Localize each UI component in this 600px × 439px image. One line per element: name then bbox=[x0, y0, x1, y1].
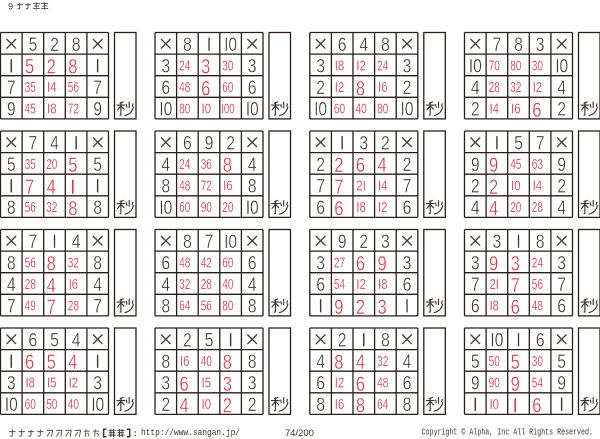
svg-text:8: 8 bbox=[536, 232, 545, 253]
svg-text:I4: I4 bbox=[489, 102, 499, 118]
svg-text:4: 4 bbox=[93, 275, 102, 296]
svg-text:8: 8 bbox=[68, 197, 77, 220]
svg-text:8: 8 bbox=[356, 77, 365, 100]
svg-text:48: 48 bbox=[377, 376, 388, 392]
svg-text:54: 54 bbox=[334, 277, 345, 293]
svg-text:4: 4 bbox=[161, 155, 170, 176]
svg-text:8: 8 bbox=[381, 330, 390, 351]
svg-text:3: 3 bbox=[223, 373, 232, 396]
svg-text:9: 9 bbox=[8, 1, 13, 11]
svg-text:90: 90 bbox=[489, 376, 500, 392]
svg-text:8: 8 bbox=[161, 177, 170, 198]
svg-text:2: 2 bbox=[334, 154, 343, 177]
svg-text:I: I bbox=[473, 395, 478, 416]
svg-text:32: 32 bbox=[68, 256, 79, 272]
svg-text:72: 72 bbox=[201, 179, 212, 195]
svg-text:I0: I0 bbox=[224, 232, 237, 253]
svg-text:48: 48 bbox=[179, 256, 190, 272]
svg-text:I: I bbox=[318, 297, 323, 318]
svg-text:I4: I4 bbox=[47, 80, 57, 96]
svg-text:7: 7 bbox=[47, 296, 56, 319]
svg-text:2: 2 bbox=[403, 78, 412, 99]
svg-text:50: 50 bbox=[489, 354, 500, 370]
svg-text:56: 56 bbox=[25, 256, 36, 272]
svg-text:I6: I6 bbox=[378, 80, 388, 96]
svg-text:9: 9 bbox=[334, 296, 343, 319]
svg-text:9: 9 bbox=[378, 253, 387, 276]
svg-text:60: 60 bbox=[222, 256, 233, 272]
svg-text:8: 8 bbox=[93, 198, 102, 219]
svg-text:2: 2 bbox=[557, 177, 566, 198]
svg-text:6: 6 bbox=[356, 373, 365, 396]
svg-text:28: 28 bbox=[532, 200, 543, 216]
svg-text:5: 5 bbox=[514, 133, 523, 154]
svg-text:32: 32 bbox=[46, 200, 57, 216]
svg-text:I0: I0 bbox=[401, 100, 414, 121]
svg-text:35: 35 bbox=[25, 157, 36, 173]
svg-text:7: 7 bbox=[403, 177, 412, 198]
svg-text:4: 4 bbox=[557, 198, 566, 219]
svg-text:3: 3 bbox=[161, 374, 170, 395]
svg-text:70: 70 bbox=[489, 59, 500, 75]
svg-text:80: 80 bbox=[179, 102, 190, 118]
svg-text:2: 2 bbox=[248, 395, 257, 416]
svg-text:3: 3 bbox=[378, 296, 387, 319]
svg-text:4: 4 bbox=[72, 330, 81, 351]
svg-text:42: 42 bbox=[201, 256, 212, 272]
svg-text:I0: I0 bbox=[202, 102, 212, 118]
svg-text:I8: I8 bbox=[489, 299, 499, 315]
svg-text:4: 4 bbox=[72, 232, 81, 253]
svg-text:3: 3 bbox=[161, 56, 170, 77]
svg-text:5: 5 bbox=[205, 330, 214, 351]
svg-text:7: 7 bbox=[25, 176, 34, 199]
svg-text:4: 4 bbox=[161, 275, 170, 296]
svg-text:6: 6 bbox=[532, 99, 541, 122]
svg-text:I: I bbox=[494, 133, 499, 154]
svg-text:48: 48 bbox=[179, 179, 190, 195]
svg-text:8: 8 bbox=[72, 35, 81, 56]
svg-text:3: 3 bbox=[493, 232, 502, 253]
svg-text:I0: I0 bbox=[489, 397, 499, 413]
svg-text:9: 9 bbox=[557, 155, 566, 176]
svg-text:6: 6 bbox=[316, 198, 325, 219]
svg-text:3: 3 bbox=[7, 374, 16, 395]
svg-text:7: 7 bbox=[93, 297, 102, 318]
svg-text:56: 56 bbox=[68, 80, 79, 96]
svg-text:http://www.sangan.jp/: http://www.sangan.jp/ bbox=[141, 428, 240, 438]
svg-text:24: 24 bbox=[532, 256, 543, 272]
svg-text:9: 9 bbox=[489, 154, 498, 177]
svg-text:4: 4 bbox=[248, 155, 257, 176]
svg-text:3: 3 bbox=[316, 253, 325, 274]
svg-text:6: 6 bbox=[161, 253, 170, 274]
svg-text:2: 2 bbox=[183, 330, 192, 351]
svg-text:I: I bbox=[404, 297, 409, 318]
svg-text:3: 3 bbox=[403, 56, 412, 77]
svg-text:3: 3 bbox=[511, 253, 520, 276]
svg-text:I8: I8 bbox=[47, 102, 57, 118]
svg-text:I0: I0 bbox=[91, 395, 104, 416]
svg-text:28: 28 bbox=[25, 277, 36, 293]
svg-text:4: 4 bbox=[248, 275, 257, 296]
svg-text:I0: I0 bbox=[5, 395, 18, 416]
svg-text:I: I bbox=[95, 56, 100, 77]
svg-text:I0: I0 bbox=[159, 100, 172, 121]
svg-text:2: 2 bbox=[223, 394, 232, 417]
svg-text:7: 7 bbox=[7, 297, 16, 318]
svg-text:6: 6 bbox=[403, 374, 412, 395]
svg-text:24: 24 bbox=[377, 59, 388, 75]
svg-text:2: 2 bbox=[356, 296, 365, 319]
svg-text:4: 4 bbox=[359, 35, 368, 56]
svg-text:I8: I8 bbox=[356, 200, 366, 216]
svg-text:8: 8 bbox=[403, 395, 412, 416]
svg-text:48: 48 bbox=[179, 80, 190, 96]
svg-text:I0: I0 bbox=[490, 330, 503, 351]
svg-text:I: I bbox=[516, 330, 521, 351]
svg-text:6: 6 bbox=[511, 296, 520, 319]
svg-text:5: 5 bbox=[93, 155, 102, 176]
svg-text:I: I bbox=[95, 177, 100, 198]
svg-text:I0: I0 bbox=[159, 198, 172, 219]
svg-text:20: 20 bbox=[46, 157, 57, 173]
svg-text:8: 8 bbox=[223, 351, 232, 374]
svg-text:9: 9 bbox=[489, 253, 498, 276]
svg-text:24: 24 bbox=[179, 157, 190, 173]
svg-text:80: 80 bbox=[222, 299, 233, 315]
svg-text:6: 6 bbox=[334, 197, 343, 220]
svg-text:3: 3 bbox=[557, 253, 566, 274]
svg-text:7: 7 bbox=[316, 177, 325, 198]
svg-text:80: 80 bbox=[510, 59, 521, 75]
svg-text:8: 8 bbox=[223, 154, 232, 177]
svg-text:3: 3 bbox=[93, 374, 102, 395]
svg-text:4: 4 bbox=[47, 274, 56, 297]
svg-text:40: 40 bbox=[222, 277, 233, 293]
svg-text:2: 2 bbox=[471, 177, 480, 198]
svg-text:I6: I6 bbox=[335, 397, 345, 413]
svg-text:2: 2 bbox=[557, 100, 566, 121]
svg-text:I5: I5 bbox=[47, 376, 57, 392]
svg-text:I: I bbox=[361, 330, 366, 351]
svg-text:8: 8 bbox=[356, 394, 365, 417]
svg-text:8: 8 bbox=[161, 352, 170, 373]
svg-text:3: 3 bbox=[471, 253, 480, 274]
svg-text:I: I bbox=[70, 176, 76, 199]
svg-text:54: 54 bbox=[532, 376, 543, 392]
svg-text:3: 3 bbox=[248, 56, 257, 77]
svg-text:I2: I2 bbox=[533, 80, 543, 96]
svg-text:6: 6 bbox=[471, 297, 480, 318]
svg-text:3: 3 bbox=[316, 56, 325, 77]
svg-text:I6: I6 bbox=[69, 277, 79, 293]
svg-text:4: 4 bbox=[316, 352, 325, 373]
svg-text:I0: I0 bbox=[469, 56, 482, 77]
svg-text:I00: I00 bbox=[221, 102, 234, 118]
svg-text:I0: I0 bbox=[511, 179, 521, 195]
svg-text:I2: I2 bbox=[378, 200, 388, 216]
svg-text:4: 4 bbox=[471, 78, 480, 99]
svg-text:I2: I2 bbox=[69, 376, 79, 392]
svg-text:6: 6 bbox=[161, 78, 170, 99]
svg-text:8: 8 bbox=[7, 198, 16, 219]
svg-text:6: 6 bbox=[248, 253, 257, 274]
svg-text:3: 3 bbox=[201, 56, 210, 79]
svg-text:2: 2 bbox=[489, 176, 498, 199]
svg-text:8: 8 bbox=[381, 35, 390, 56]
svg-text:30: 30 bbox=[222, 59, 233, 75]
svg-text:I: I bbox=[9, 352, 14, 373]
svg-text:I: I bbox=[9, 56, 14, 77]
svg-text:60: 60 bbox=[25, 397, 36, 413]
svg-text:I0: I0 bbox=[202, 397, 212, 413]
svg-text:24: 24 bbox=[179, 59, 190, 75]
svg-text:60: 60 bbox=[222, 80, 233, 96]
svg-text:3: 3 bbox=[381, 232, 390, 253]
svg-text:8: 8 bbox=[248, 352, 257, 373]
svg-text:8: 8 bbox=[161, 297, 170, 318]
svg-text:6: 6 bbox=[403, 198, 412, 219]
svg-text:64: 64 bbox=[377, 397, 388, 413]
svg-text:6: 6 bbox=[356, 253, 365, 276]
svg-text:4: 4 bbox=[557, 78, 566, 99]
svg-text:2: 2 bbox=[471, 100, 480, 121]
svg-text:9: 9 bbox=[338, 232, 347, 253]
svg-text:48: 48 bbox=[532, 299, 543, 315]
svg-text:6: 6 bbox=[316, 275, 325, 296]
svg-text:7: 7 bbox=[511, 274, 520, 297]
svg-text:I2: I2 bbox=[335, 80, 345, 96]
svg-text:6: 6 bbox=[201, 77, 210, 100]
svg-text:9: 9 bbox=[7, 100, 16, 121]
svg-text:2: 2 bbox=[161, 395, 170, 416]
svg-text:6: 6 bbox=[338, 35, 347, 56]
svg-text:6: 6 bbox=[316, 374, 325, 395]
svg-text:I5: I5 bbox=[202, 376, 212, 392]
svg-text:8: 8 bbox=[183, 232, 192, 253]
svg-text:7: 7 bbox=[7, 78, 16, 99]
svg-text:63: 63 bbox=[532, 157, 543, 173]
svg-text:8: 8 bbox=[183, 35, 192, 56]
svg-text:I8: I8 bbox=[335, 59, 345, 75]
svg-text:I8: I8 bbox=[378, 277, 388, 293]
svg-text:7: 7 bbox=[493, 35, 502, 56]
svg-text:I: I bbox=[228, 330, 233, 351]
svg-text:8: 8 bbox=[248, 297, 257, 318]
svg-text:45: 45 bbox=[25, 102, 36, 118]
svg-text:I: I bbox=[512, 394, 518, 417]
svg-text:2: 2 bbox=[226, 133, 235, 154]
svg-text:50: 50 bbox=[46, 397, 57, 413]
svg-text:9: 9 bbox=[557, 374, 566, 395]
svg-text:5: 5 bbox=[47, 351, 56, 374]
svg-text:74/200: 74/200 bbox=[285, 428, 314, 439]
svg-text:9: 9 bbox=[93, 100, 102, 121]
svg-text:I2: I2 bbox=[335, 376, 345, 392]
svg-text:7: 7 bbox=[334, 176, 343, 199]
svg-text:20: 20 bbox=[510, 200, 521, 216]
svg-text:Copyright © Alpha, Inc All Rig: Copyright © Alpha, Inc All Rights Reserv… bbox=[422, 428, 594, 438]
svg-text:49: 49 bbox=[25, 299, 36, 315]
svg-text:30: 30 bbox=[532, 59, 543, 75]
svg-text:6: 6 bbox=[356, 154, 365, 177]
svg-text:I2: I2 bbox=[356, 277, 366, 293]
svg-text:30: 30 bbox=[532, 354, 543, 370]
svg-text:5: 5 bbox=[25, 56, 34, 79]
svg-text:I: I bbox=[52, 232, 57, 253]
svg-text:I: I bbox=[559, 395, 564, 416]
svg-text:3: 3 bbox=[248, 374, 257, 395]
svg-text:I0: I0 bbox=[246, 198, 259, 219]
svg-text:9: 9 bbox=[511, 373, 520, 396]
svg-text:6: 6 bbox=[248, 78, 257, 99]
svg-text:56: 56 bbox=[532, 277, 543, 293]
svg-text:I: I bbox=[516, 232, 521, 253]
svg-text:32: 32 bbox=[510, 80, 521, 96]
svg-text:6: 6 bbox=[403, 275, 412, 296]
svg-text:40: 40 bbox=[356, 102, 367, 118]
svg-text:6: 6 bbox=[532, 394, 541, 417]
svg-text:7: 7 bbox=[29, 133, 38, 154]
svg-text:8: 8 bbox=[334, 351, 343, 374]
svg-text:5: 5 bbox=[557, 352, 566, 373]
svg-text:7: 7 bbox=[471, 275, 480, 296]
svg-text:I: I bbox=[340, 133, 345, 154]
svg-text:I2: I2 bbox=[356, 59, 366, 75]
svg-text:28: 28 bbox=[68, 299, 79, 315]
svg-text:4: 4 bbox=[7, 275, 16, 296]
svg-text:I6: I6 bbox=[223, 179, 233, 195]
svg-text:6: 6 bbox=[536, 330, 545, 351]
svg-text:I4: I4 bbox=[378, 179, 388, 195]
svg-text:32: 32 bbox=[179, 277, 190, 293]
svg-text:4: 4 bbox=[471, 198, 480, 219]
svg-text:90: 90 bbox=[201, 200, 212, 216]
svg-text:32: 32 bbox=[377, 354, 388, 370]
svg-text:4: 4 bbox=[378, 154, 387, 177]
svg-text:2: 2 bbox=[381, 133, 390, 154]
svg-text:40: 40 bbox=[201, 354, 212, 370]
svg-text:3: 3 bbox=[403, 253, 412, 274]
svg-text:2: 2 bbox=[403, 155, 412, 176]
svg-text:3: 3 bbox=[359, 133, 368, 154]
svg-text:5: 5 bbox=[68, 154, 77, 177]
svg-text:I0: I0 bbox=[246, 100, 259, 121]
svg-text:I6: I6 bbox=[180, 354, 190, 370]
svg-text:I0: I0 bbox=[314, 100, 327, 121]
svg-text:8: 8 bbox=[316, 395, 325, 416]
svg-text:27: 27 bbox=[334, 256, 345, 272]
svg-text:4: 4 bbox=[489, 197, 498, 220]
svg-text:2: 2 bbox=[50, 35, 59, 56]
svg-text:I8: I8 bbox=[25, 376, 35, 392]
svg-text:7: 7 bbox=[536, 133, 545, 154]
svg-text:5: 5 bbox=[29, 35, 38, 56]
svg-text:2I: 2I bbox=[489, 277, 499, 293]
svg-text:7: 7 bbox=[557, 275, 566, 296]
svg-text:I: I bbox=[73, 133, 78, 154]
svg-text:3: 3 bbox=[536, 35, 545, 56]
svg-text:2: 2 bbox=[316, 155, 325, 176]
svg-text:2I: 2I bbox=[356, 179, 366, 195]
svg-text:8: 8 bbox=[68, 56, 77, 79]
svg-text:8: 8 bbox=[514, 35, 523, 56]
svg-text:20: 20 bbox=[222, 200, 233, 216]
svg-text:2: 2 bbox=[359, 232, 368, 253]
svg-text:5: 5 bbox=[50, 330, 59, 351]
svg-text:6: 6 bbox=[25, 351, 34, 374]
svg-text:I0: I0 bbox=[555, 56, 568, 77]
svg-text:72: 72 bbox=[68, 102, 79, 118]
svg-text:40: 40 bbox=[68, 397, 79, 413]
svg-text:45: 45 bbox=[510, 157, 521, 173]
svg-text:4: 4 bbox=[47, 176, 56, 199]
svg-text:I: I bbox=[9, 177, 14, 198]
svg-text:28: 28 bbox=[201, 277, 212, 293]
svg-text:60: 60 bbox=[179, 200, 190, 216]
svg-text:8: 8 bbox=[248, 177, 257, 198]
svg-text:28: 28 bbox=[489, 80, 500, 96]
svg-text:8: 8 bbox=[7, 253, 16, 274]
svg-text:4: 4 bbox=[50, 133, 59, 154]
svg-text:8: 8 bbox=[47, 253, 56, 276]
svg-text:9: 9 bbox=[471, 374, 480, 395]
svg-text:I: I bbox=[95, 352, 100, 373]
svg-text:56: 56 bbox=[201, 299, 212, 315]
svg-text:4: 4 bbox=[68, 351, 77, 374]
svg-text:I4: I4 bbox=[533, 179, 543, 195]
svg-text:4: 4 bbox=[403, 352, 412, 373]
svg-text:4: 4 bbox=[356, 351, 365, 374]
svg-text:7: 7 bbox=[205, 232, 214, 253]
svg-text:80: 80 bbox=[377, 102, 388, 118]
svg-text:7: 7 bbox=[93, 78, 102, 99]
svg-text:4: 4 bbox=[180, 394, 189, 417]
svg-text:6: 6 bbox=[180, 373, 189, 396]
svg-text:35: 35 bbox=[25, 80, 36, 96]
svg-text:5: 5 bbox=[7, 155, 16, 176]
svg-text:2: 2 bbox=[338, 330, 347, 351]
svg-text:6: 6 bbox=[29, 330, 38, 351]
svg-text:9: 9 bbox=[471, 155, 480, 176]
svg-text:9: 9 bbox=[205, 133, 214, 154]
svg-text:2: 2 bbox=[316, 78, 325, 99]
svg-text:5: 5 bbox=[511, 351, 520, 374]
svg-text:7: 7 bbox=[29, 232, 38, 253]
svg-text:I6: I6 bbox=[511, 102, 521, 118]
svg-text:64: 64 bbox=[179, 299, 190, 315]
svg-text:36: 36 bbox=[201, 157, 212, 173]
svg-text:2: 2 bbox=[47, 56, 56, 79]
svg-text:56: 56 bbox=[25, 200, 36, 216]
svg-text:6: 6 bbox=[557, 297, 566, 318]
svg-text:I: I bbox=[206, 35, 211, 56]
svg-text:60: 60 bbox=[334, 102, 345, 118]
svg-text:I0: I0 bbox=[224, 35, 237, 56]
svg-text:6: 6 bbox=[183, 133, 192, 154]
svg-text:5: 5 bbox=[471, 352, 480, 373]
svg-text:8: 8 bbox=[93, 253, 102, 274]
